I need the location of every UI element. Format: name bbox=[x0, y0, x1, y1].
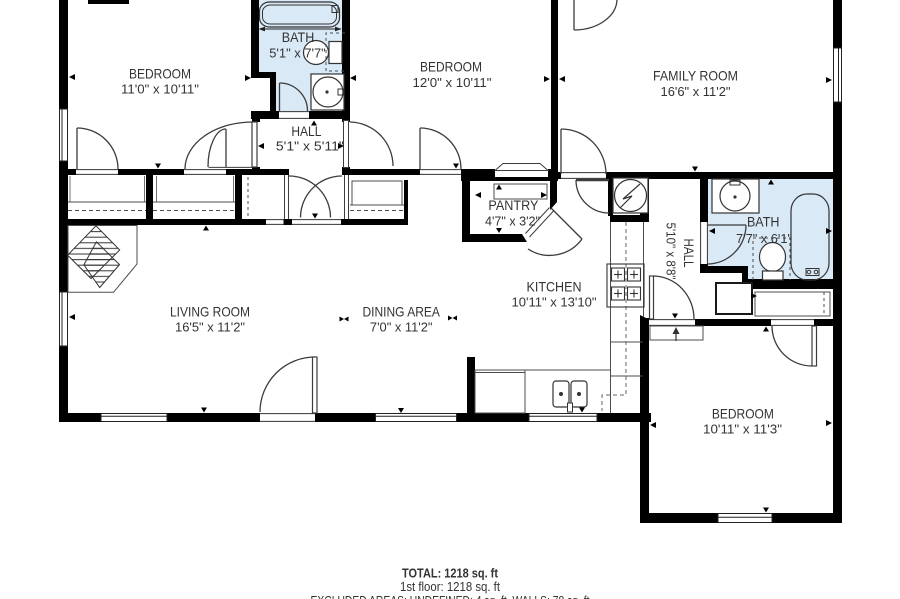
svg-text:5'1" x 7'7": 5'1" x 7'7" bbox=[269, 46, 326, 61]
svg-text:1st floor: 1218 sq. ft: 1st floor: 1218 sq. ft bbox=[400, 579, 500, 594]
svg-text:5'10" x 8'8": 5'10" x 8'8" bbox=[664, 223, 679, 280]
svg-text:BEDROOM: BEDROOM bbox=[129, 66, 191, 81]
svg-text:11'0" x 10'11": 11'0" x 10'11" bbox=[121, 82, 199, 97]
svg-text:HALL: HALL bbox=[681, 239, 696, 268]
svg-text:PANTRY: PANTRY bbox=[488, 198, 538, 213]
svg-text:KITCHEN: KITCHEN bbox=[527, 280, 582, 295]
svg-text:BEDROOM: BEDROOM bbox=[420, 60, 482, 75]
svg-text:7'7" x 6'1": 7'7" x 6'1" bbox=[736, 231, 792, 246]
svg-text:16'5" x 11'2": 16'5" x 11'2" bbox=[175, 320, 245, 335]
svg-text:BEDROOM: BEDROOM bbox=[712, 407, 774, 422]
svg-text:4'7" x 3'2": 4'7" x 3'2" bbox=[485, 214, 540, 229]
svg-text:LIVING ROOM: LIVING ROOM bbox=[170, 305, 250, 320]
svg-text:10'11" x 11'3": 10'11" x 11'3" bbox=[703, 422, 782, 437]
svg-text:16'6" x 11'2": 16'6" x 11'2" bbox=[661, 84, 731, 99]
svg-text:HALL: HALL bbox=[291, 124, 321, 139]
svg-text:BATH: BATH bbox=[747, 215, 780, 230]
svg-text:DINING AREA: DINING AREA bbox=[362, 305, 440, 320]
svg-text:7'0" x 11'2": 7'0" x 11'2" bbox=[370, 320, 433, 335]
svg-text:BATH: BATH bbox=[282, 30, 315, 45]
svg-text:EXCLUDED AREAS: UNDEFINED: 4 s: EXCLUDED AREAS: UNDEFINED: 4 sq. ft, WAL… bbox=[311, 593, 590, 599]
svg-text:5'1" x 5'11": 5'1" x 5'11" bbox=[276, 139, 344, 154]
svg-text:10'11" x 13'10": 10'11" x 13'10" bbox=[512, 295, 597, 310]
svg-text:12'0" x 10'11": 12'0" x 10'11" bbox=[413, 75, 492, 90]
svg-text:FAMILY ROOM: FAMILY ROOM bbox=[653, 69, 738, 84]
